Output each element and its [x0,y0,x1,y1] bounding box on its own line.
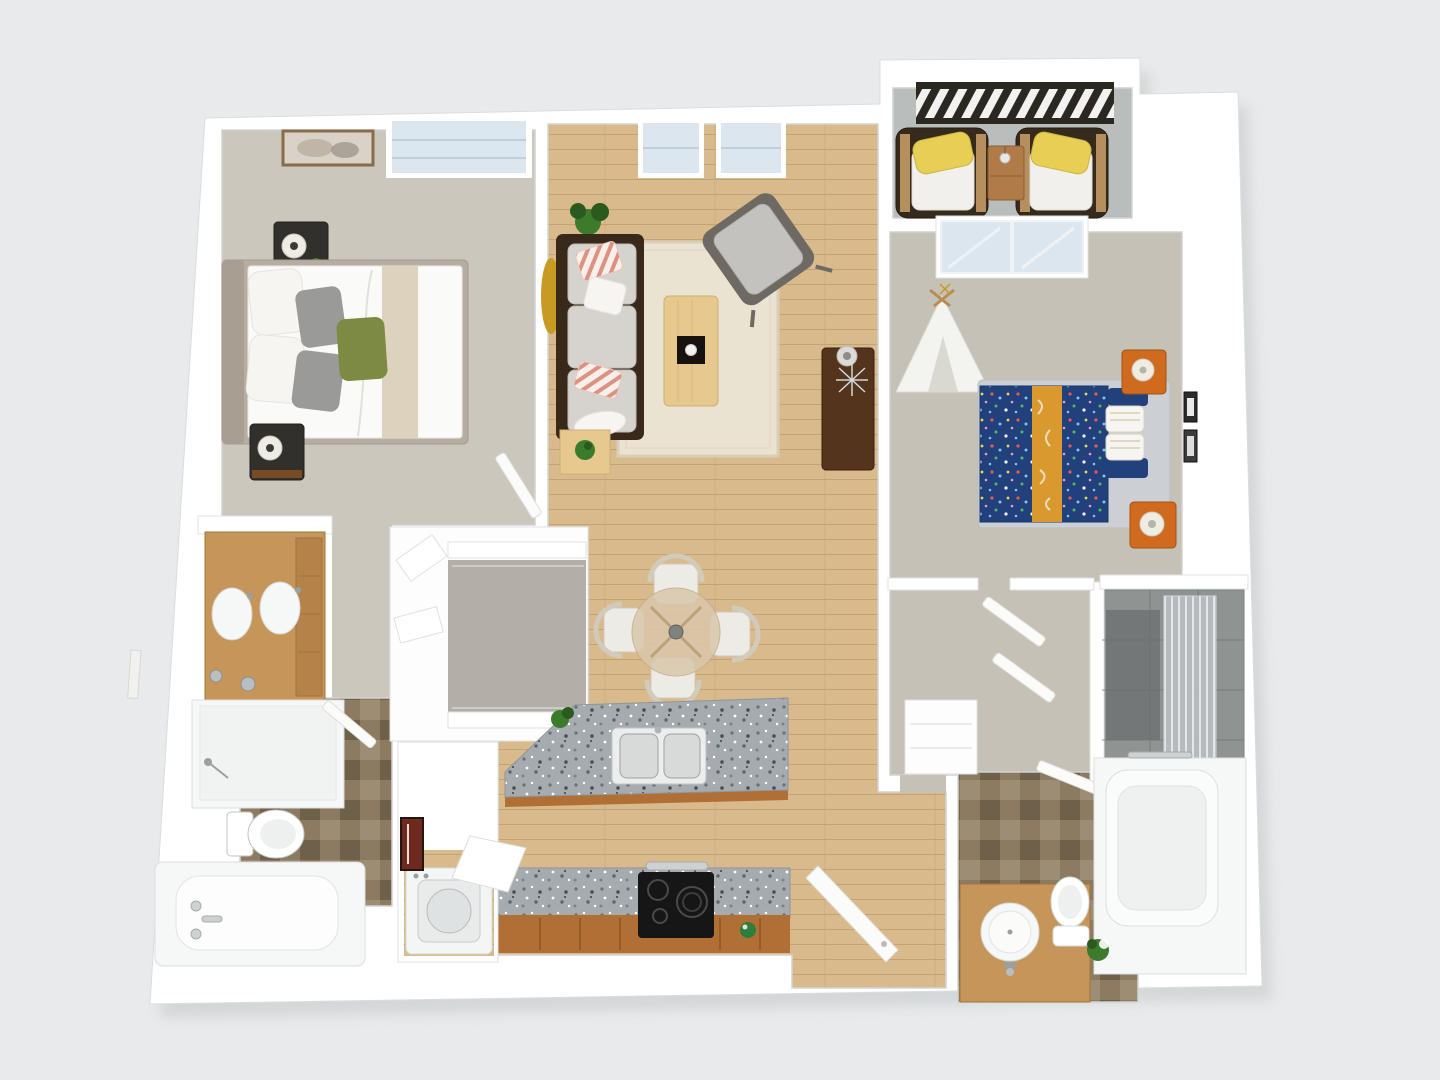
patio-chair-left [896,128,988,218]
linen-closet [905,700,977,774]
faucet [295,587,301,593]
coffee-table [664,296,718,406]
herb-plant [562,707,574,719]
double-vanity [205,532,325,702]
plant-on-table [575,440,595,460]
pillow-gray [291,349,346,412]
pillow-green [336,316,388,381]
bath2-plant [1087,939,1109,961]
console-lamp-top [843,352,851,360]
bathtub-2 [1094,752,1246,974]
centerpiece [669,625,683,639]
drain [1008,930,1013,935]
shower-floor [200,706,336,800]
washer-drum [427,889,471,933]
faucet-handle [1006,968,1014,976]
railing-bottom-bar [916,118,1114,124]
toilet-seat [1058,885,1082,919]
walk-in-shower-1 [192,700,344,808]
armrest [900,134,910,212]
armrest [976,134,986,212]
framed-picture [401,818,423,870]
striped-pillow [1106,406,1144,432]
toilet-seat [260,819,296,849]
art-blob [331,142,359,158]
shower-glass-panel [1164,596,1216,772]
hall-carpet-patch [900,775,946,793]
headboard [222,260,244,444]
art-blob [297,139,333,157]
towel-bar [1128,752,1192,758]
closet-carpet [448,560,586,714]
wall-art [283,131,373,165]
seat-cushion [568,306,636,368]
toilet-2 [1051,877,1089,946]
sliding-glass-door [936,216,1088,278]
oven-handle [646,862,708,870]
shower-mat [1106,610,1160,740]
decor-flower [241,677,255,691]
lamp-finial [1140,367,1147,374]
duvet-stripe [382,266,418,438]
living-window-left [638,118,704,178]
sink-basin-right [664,734,700,778]
cooktop [638,872,714,938]
sofa-side-table [560,430,610,474]
bathtub-1 [155,862,365,966]
striped-pillow [1106,434,1144,460]
sofa [556,234,644,440]
tub-spout [202,916,222,922]
orange-nightstand-bottom [1130,502,1176,548]
plant-on-table [584,442,592,450]
nightstand-bottom [250,424,304,480]
navy-pillow [1106,458,1148,478]
sink-basin [260,582,300,634]
tub-basin [176,876,338,950]
armrest [1096,134,1106,212]
faucet [247,593,253,599]
walk-in-closet [390,527,588,741]
lamp-finial [1148,520,1156,528]
tub-handle [191,901,201,911]
plant-flower [1099,939,1109,949]
tub-handle [191,929,201,939]
nightstand-wood-edge [252,470,302,478]
plant-foliage [1087,939,1097,949]
slatted-railing [916,89,1114,119]
patio-side-table [988,146,1024,200]
decor-branches [836,364,868,396]
picture-mat [1187,436,1194,456]
living-window-right [716,118,786,178]
washer-knob [414,874,419,879]
plant-foliage [570,203,586,219]
cup [686,345,697,356]
floor-plan-rendering: 3D top-down floor plan rendering of a tw… [0,0,1440,1080]
orange-nightstand-top [1122,350,1166,394]
plant-foliage [591,203,609,221]
green-bowl [740,922,756,938]
toilet-1 [227,810,304,858]
vanity-drawers [296,538,322,696]
closet-hall-wall-a [888,578,978,590]
tub-inner [1118,786,1206,910]
green-bowl-highlight [743,925,748,930]
lamp-finial [266,444,274,452]
window-glass [392,121,526,173]
bath1-wall [198,516,332,534]
closet-hall-wall-b [1010,578,1094,590]
patio-chair-right [1016,128,1108,218]
toilet-tank [1053,926,1089,946]
bath1-corridor-carpet [332,518,392,704]
vase [1000,153,1010,163]
railing-top-bar [916,82,1114,89]
sink-basin-left [620,734,658,778]
picture-mat [1187,398,1194,416]
shower-room-wall-h [1100,575,1248,589]
closet-shelf [448,542,586,558]
sink-basin [212,588,252,640]
decor-flower [210,670,222,682]
island-faucet [655,727,662,734]
dining-table [632,588,720,676]
washer-knob [424,874,429,879]
console-table [822,346,874,470]
bedroom1-window [386,116,532,178]
kitchen-counter-run [498,862,790,953]
bed-1 [222,260,468,444]
lamp-finial [290,242,298,250]
faucet [1004,962,1016,968]
door-handle [881,941,887,947]
